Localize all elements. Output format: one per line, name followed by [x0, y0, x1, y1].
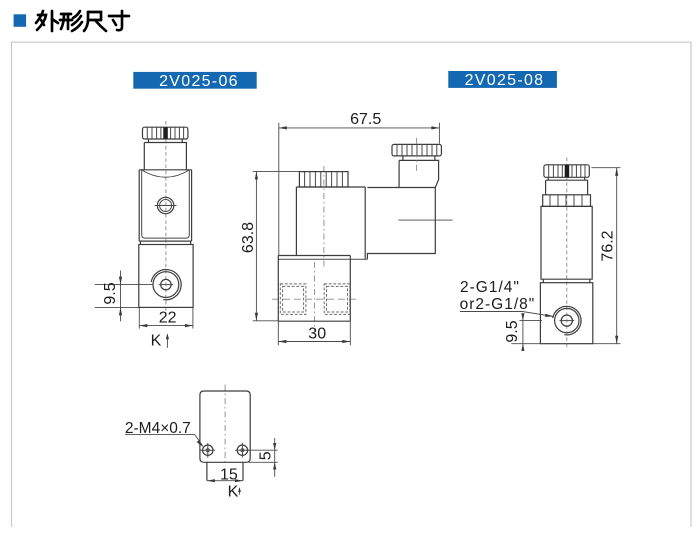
svg-text:9.5: 9.5 — [504, 320, 521, 342]
svg-text:K: K — [228, 484, 239, 501]
svg-text:9.5: 9.5 — [102, 282, 119, 304]
svg-text:22: 22 — [159, 310, 177, 327]
svg-text:67.5: 67.5 — [350, 111, 381, 128]
svg-text:2-G1/4": 2-G1/4" — [460, 279, 520, 296]
svg-text:15: 15 — [220, 467, 238, 484]
svg-text:2V025-06: 2V025-06 — [159, 73, 239, 90]
svg-text:63.8: 63.8 — [240, 222, 257, 253]
svg-text:2V025-08: 2V025-08 — [465, 72, 545, 89]
svg-text:K: K — [151, 333, 162, 350]
svg-text:or2-G1/8": or2-G1/8" — [460, 296, 536, 313]
svg-text:76.2: 76.2 — [600, 230, 617, 261]
svg-text:5: 5 — [258, 451, 275, 460]
svg-text:30: 30 — [308, 326, 326, 343]
